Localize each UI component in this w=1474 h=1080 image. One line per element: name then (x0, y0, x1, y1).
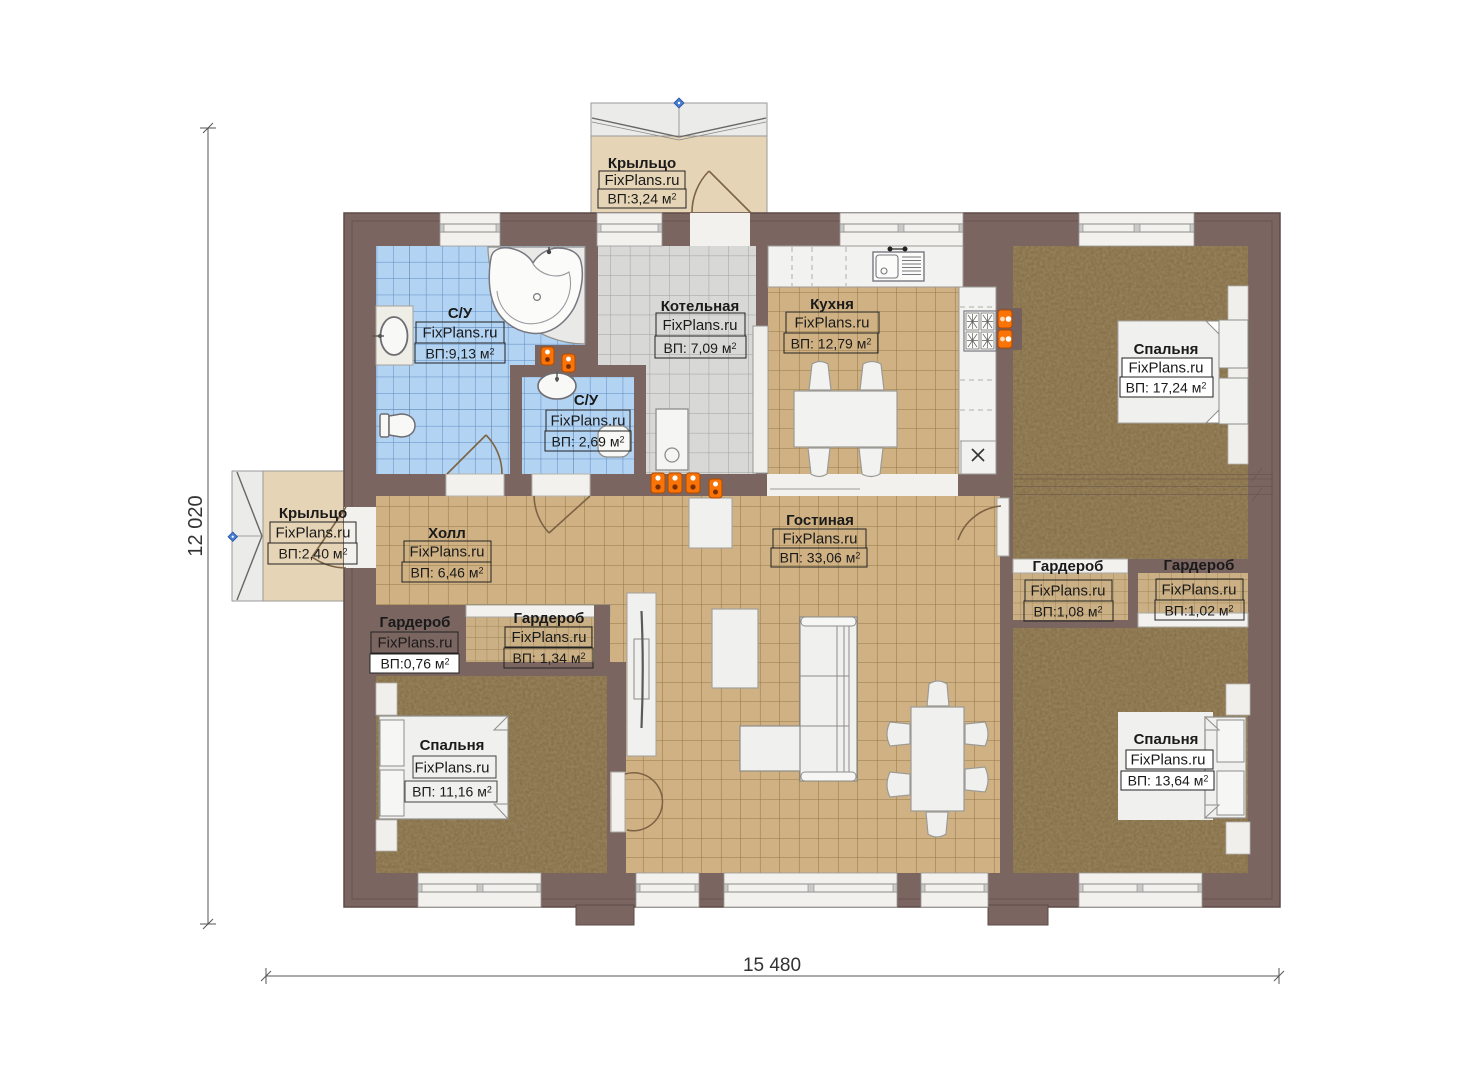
svg-text:ВП: 2,69 м2: ВП: 2,69 м2 (552, 434, 625, 450)
svg-text:FixPlans.ru: FixPlans.ru (1030, 583, 1105, 600)
svg-text:Крыльцо: Крыльцо (608, 155, 676, 172)
svg-text:ВП:3,24 м2: ВП:3,24 м2 (607, 191, 676, 207)
svg-text:ВП: 7,09 м2: ВП: 7,09 м2 (664, 340, 737, 356)
svg-text:ВП: 33,06 м2: ВП: 33,06 м2 (780, 550, 861, 566)
svg-text:Спальня: Спальня (1134, 341, 1199, 358)
svg-text:FixPlans.ru: FixPlans.ru (414, 760, 489, 777)
svg-text:FixPlans.ru: FixPlans.ru (794, 315, 869, 332)
svg-text:FixPlans.ru: FixPlans.ru (422, 325, 497, 342)
svg-text:FixPlans.ru: FixPlans.ru (1130, 752, 1205, 769)
svg-text:ВП: 13,64 м2: ВП: 13,64 м2 (1128, 773, 1209, 789)
svg-text:ВП: 11,16 м2: ВП: 11,16 м2 (412, 784, 492, 800)
svg-text:Гардероб: Гардероб (514, 610, 585, 627)
svg-text:ВП:2,40 м2: ВП:2,40 м2 (278, 546, 347, 562)
svg-text:Холл: Холл (428, 525, 466, 542)
svg-text:Котельная: Котельная (661, 298, 740, 315)
svg-text:ВП:0,76 м2: ВП:0,76 м2 (380, 656, 449, 672)
svg-text:ВП:1,08 м2: ВП:1,08 м2 (1033, 604, 1102, 620)
svg-text:Кухня: Кухня (810, 296, 854, 313)
svg-text:Гардероб: Гардероб (1164, 557, 1235, 574)
svg-text:С/У: С/У (574, 392, 599, 409)
svg-text:ВП: 17,24 м2: ВП: 17,24 м2 (1126, 380, 1207, 396)
svg-text:12 020: 12 020 (185, 495, 207, 556)
svg-text:ВП:1,02 м2: ВП:1,02 м2 (1164, 603, 1233, 619)
svg-text:FixPlans.ru: FixPlans.ru (1128, 360, 1203, 377)
svg-text:С/У: С/У (448, 305, 473, 322)
svg-text:Спальня: Спальня (420, 737, 485, 754)
svg-text:FixPlans.ru: FixPlans.ru (1161, 582, 1236, 599)
svg-text:FixPlans.ru: FixPlans.ru (409, 544, 484, 561)
svg-text:Гардероб: Гардероб (380, 614, 451, 631)
svg-text:Гардероб: Гардероб (1033, 558, 1104, 575)
svg-text:FixPlans.ru: FixPlans.ru (604, 172, 679, 189)
svg-text:ВП: 12,79 м2: ВП: 12,79 м2 (791, 336, 872, 352)
svg-text:ВП:9,13 м2: ВП:9,13 м2 (425, 346, 494, 362)
svg-text:FixPlans.ru: FixPlans.ru (377, 635, 452, 652)
svg-text:Гостиная: Гостиная (786, 512, 854, 529)
svg-text:ВП: 6,46 м2: ВП: 6,46 м2 (411, 565, 484, 581)
svg-text:FixPlans.ru: FixPlans.ru (550, 413, 625, 430)
svg-text:ВП: 1,34 м2: ВП: 1,34 м2 (513, 650, 586, 666)
svg-text:FixPlans.ru: FixPlans.ru (275, 525, 350, 542)
svg-text:Спальня: Спальня (1134, 731, 1199, 748)
svg-text:Крыльцо: Крыльцо (279, 505, 347, 522)
svg-text:FixPlans.ru: FixPlans.ru (662, 317, 737, 334)
svg-text:FixPlans.ru: FixPlans.ru (511, 629, 586, 646)
svg-text:15 480: 15 480 (743, 955, 801, 976)
svg-text:FixPlans.ru: FixPlans.ru (782, 531, 857, 548)
